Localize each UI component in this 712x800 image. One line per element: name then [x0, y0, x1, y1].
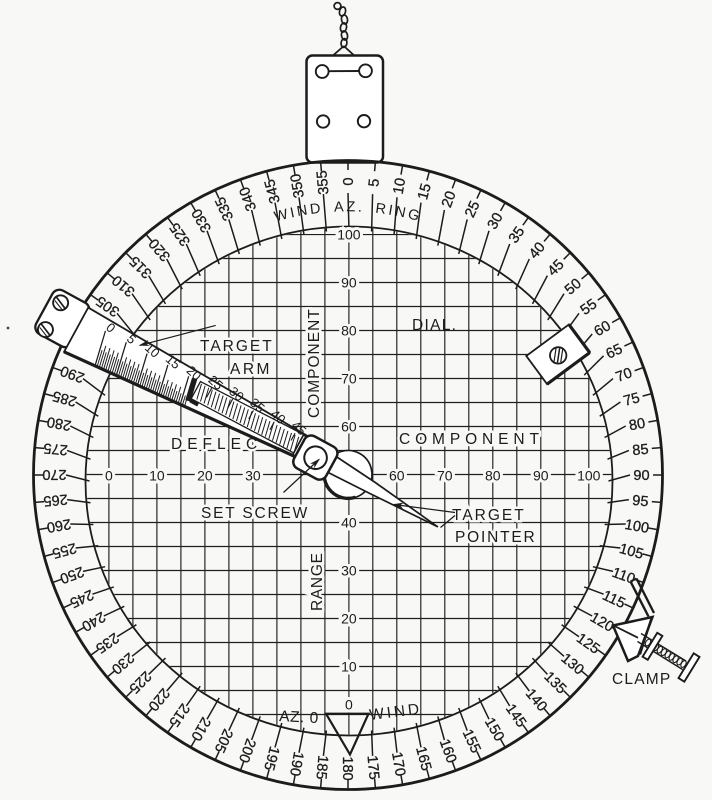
svg-text:COMPONENT: COMPONENT — [306, 308, 323, 418]
svg-text:30: 30 — [341, 562, 357, 578]
svg-text:RANGE: RANGE — [309, 552, 326, 611]
svg-text:0: 0 — [345, 696, 353, 712]
svg-text:85: 85 — [632, 442, 650, 459]
svg-text:20: 20 — [341, 610, 357, 626]
svg-text:265: 265 — [43, 491, 69, 509]
svg-text:40: 40 — [341, 514, 357, 530]
svg-text:70: 70 — [341, 370, 357, 386]
svg-text:90: 90 — [533, 467, 549, 483]
svg-text:ARM: ARM — [230, 361, 272, 378]
svg-text:100: 100 — [577, 467, 601, 483]
svg-text:POINTER: POINTER — [455, 529, 537, 546]
svg-text:10: 10 — [341, 658, 357, 674]
svg-text:180: 180 — [339, 756, 355, 780]
svg-text:80: 80 — [341, 322, 357, 338]
svg-text:90: 90 — [633, 468, 649, 484]
svg-text:0: 0 — [341, 177, 357, 185]
svg-text:TARGET: TARGET — [200, 338, 274, 355]
svg-text:5: 5 — [366, 178, 383, 187]
svg-text:DIAL.: DIAL. — [412, 317, 457, 334]
svg-text:TARGET: TARGET — [452, 507, 526, 524]
svg-text:SET SCREW: SET SCREW — [201, 505, 309, 522]
svg-text:60: 60 — [341, 418, 357, 434]
svg-text:CLAMP: CLAMP — [612, 671, 671, 688]
svg-text:185: 185 — [312, 754, 330, 780]
svg-text:20: 20 — [197, 467, 213, 483]
svg-text:60: 60 — [389, 467, 405, 483]
svg-text:DEFLEC: DEFLEC — [171, 436, 262, 453]
svg-text:275: 275 — [43, 439, 69, 457]
svg-text:70: 70 — [437, 467, 453, 483]
svg-text:COMPONENT: COMPONENT — [399, 431, 544, 448]
svg-text:AZ. 0: AZ. 0 — [279, 708, 319, 727]
svg-text:0: 0 — [105, 467, 113, 483]
svg-text:95: 95 — [632, 493, 650, 510]
svg-text:90: 90 — [341, 274, 357, 290]
svg-text:355: 355 — [314, 170, 332, 196]
svg-text:80: 80 — [628, 416, 647, 435]
svg-text:10: 10 — [391, 177, 410, 196]
svg-text:175: 175 — [364, 755, 382, 781]
svg-text:10: 10 — [149, 467, 165, 483]
svg-text:80: 80 — [485, 467, 501, 483]
svg-text:100: 100 — [337, 226, 361, 242]
svg-text:30: 30 — [245, 467, 261, 483]
svg-text:270: 270 — [42, 466, 66, 482]
